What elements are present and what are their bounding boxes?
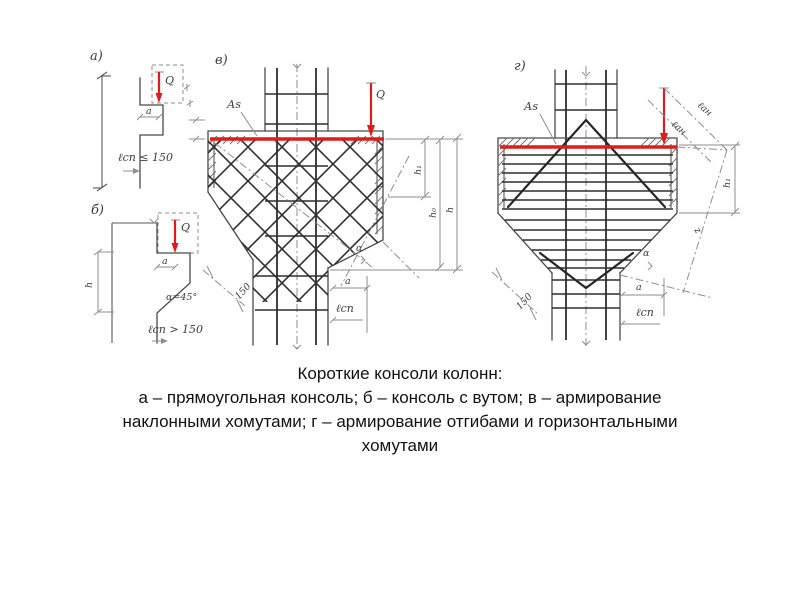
panel-v-rebar-label: Аs — [226, 98, 241, 111]
panel-b-label: б) — [91, 203, 104, 218]
figure-caption: Короткие консоли колонн: а – прямоугольн… — [40, 362, 760, 458]
panel-g-bearing-line — [619, 321, 660, 327]
panel-v-lever-arm-label: z — [374, 180, 387, 192]
panel-v-hatching — [208, 136, 383, 234]
panel-g-bearing-label: ℓсп — [636, 306, 654, 319]
panel-g-angle-mark — [648, 262, 652, 270]
panel-a-force-label: Q — [165, 74, 174, 87]
panel-g-angle-label: α — [643, 248, 650, 259]
panel-g-corbel-outline — [498, 138, 677, 273]
panel-b-bearing-arrow — [152, 338, 168, 344]
panel-b-dim-a-label: a — [162, 256, 168, 267]
slide: а) Q a ℓсп ≤ 150 — [0, 0, 800, 600]
panel-b-dim-h — [94, 249, 114, 315]
panel-g-anchor-bottom-label: ℓан — [669, 119, 688, 138]
panel-v-dim-h1-label: h₁ — [413, 165, 424, 175]
panel-v-dim-h0-label: h₀ — [428, 208, 439, 218]
panel-v-force-label: Q — [376, 88, 385, 101]
panel-g-rebar-label: Аs — [523, 100, 538, 113]
panel-v-right-dims — [330, 134, 463, 273]
panel-v-angle-label: α — [356, 243, 363, 254]
panel-v-dim-a-label: a — [345, 276, 351, 287]
panel-v-bearing-label: ℓсп — [336, 302, 354, 315]
panel-v-rebar-leader — [241, 112, 257, 136]
panel-a-bearing-label: ℓсп ≤ 150 — [118, 151, 173, 164]
panel-a-dim-a-label: a — [146, 106, 152, 117]
panel-a-bearing-arrow — [123, 168, 140, 174]
panel-v-dim-h-label: h — [445, 207, 456, 213]
panel-v-load-arrow — [366, 83, 376, 137]
panel-g-horizontal-stirrups — [502, 155, 673, 308]
panel-g-label: г) — [514, 59, 526, 74]
panel-g-rebar-leader — [540, 114, 556, 144]
panel-v-strut-lines — [215, 143, 409, 286]
caption-line-2: а – прямоугольная консоль; б – консоль с… — [40, 386, 760, 410]
panel-g-construction-lines — [620, 88, 727, 298]
panel-g-dim-a-label: a — [636, 282, 642, 293]
panel-g-slope-dim — [492, 268, 538, 320]
panel-g-load-arrow — [659, 88, 669, 145]
panel-a-label: а) — [90, 49, 103, 64]
panel-b-load-arrow — [171, 220, 180, 253]
panel-g-anchor-top-label: ℓан — [695, 100, 714, 119]
panel-g-dim-h1-label: h₁ — [722, 178, 733, 188]
caption-title: Короткие консоли колонн: — [40, 362, 760, 386]
panel-v-label: в) — [215, 53, 228, 68]
caption-line-3: наклонными хомутами; г – армирование отг… — [40, 410, 760, 434]
panel-v-left-ticks — [189, 117, 205, 142]
panel-v-bearing-line — [330, 317, 363, 323]
panel-a-axis-line — [93, 72, 111, 191]
panel-b-top-line — [112, 219, 158, 223]
panel-a-load-arrow — [155, 72, 164, 103]
caption-line-4: хомутами — [40, 434, 760, 458]
panel-g-drawing: г) — [478, 48, 763, 353]
panel-b-dim-h-label: h — [84, 282, 95, 288]
panel-v-drawing: в) — [183, 48, 478, 358]
